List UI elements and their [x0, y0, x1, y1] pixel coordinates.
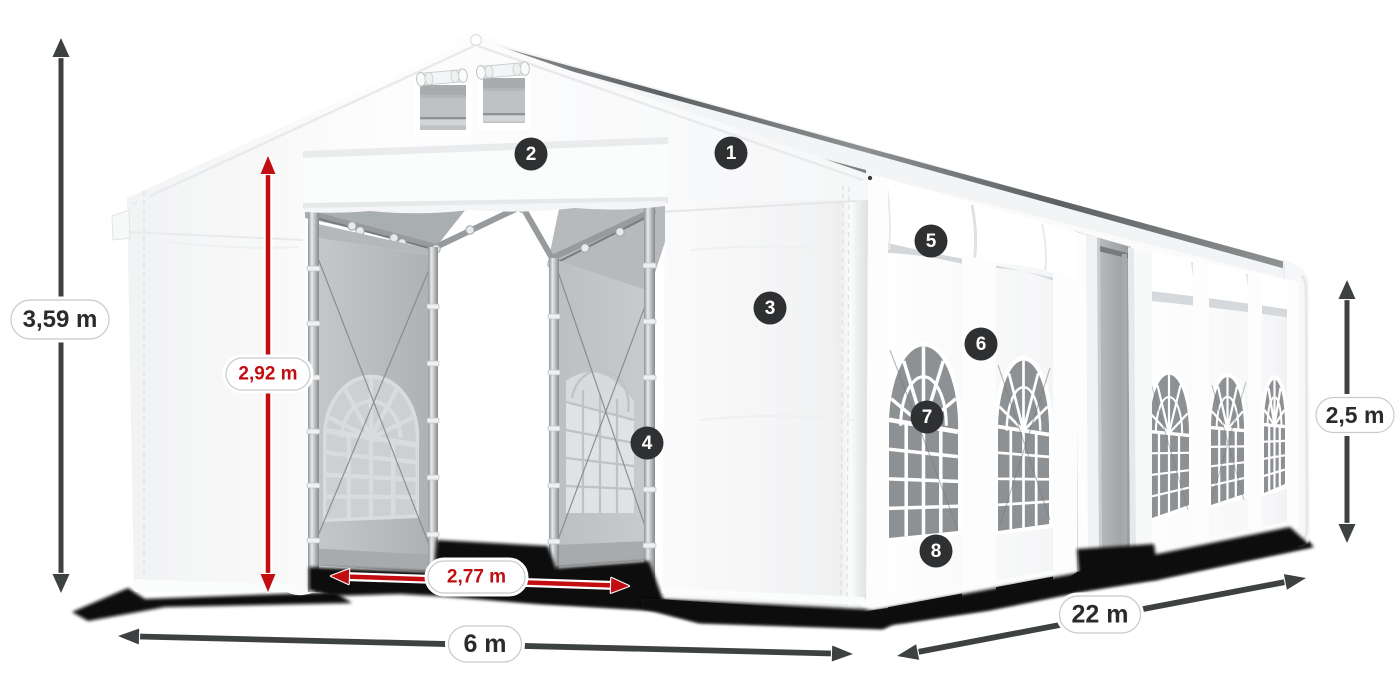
svg-text:6: 6: [976, 334, 987, 355]
svg-text:2,77 m: 2,77 m: [447, 567, 506, 588]
svg-text:2,92 m: 2,92 m: [238, 364, 297, 385]
svg-text:4: 4: [642, 433, 653, 454]
svg-text:3: 3: [765, 298, 776, 319]
svg-text:5: 5: [926, 231, 937, 252]
svg-text:6 m: 6 m: [463, 630, 506, 658]
svg-text:1: 1: [726, 143, 737, 164]
svg-text:3,59 m: 3,59 m: [23, 306, 98, 333]
svg-text:8: 8: [931, 541, 942, 562]
svg-text:7: 7: [922, 407, 933, 428]
svg-text:2,5 m: 2,5 m: [1326, 402, 1385, 428]
svg-text:2: 2: [526, 144, 537, 165]
svg-text:22 m: 22 m: [1072, 601, 1129, 629]
